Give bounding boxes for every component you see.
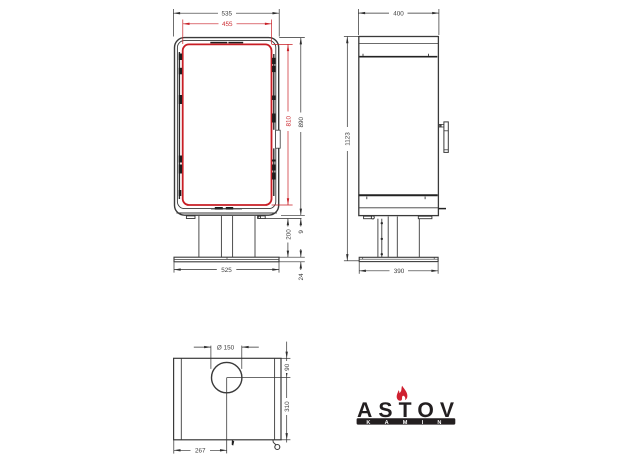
svg-text:310: 310 (284, 401, 291, 412)
svg-text:455: 455 (222, 21, 233, 28)
svg-text:390: 390 (394, 268, 405, 275)
svg-text:890: 890 (298, 116, 305, 127)
svg-text:525: 525 (221, 267, 232, 274)
svg-text:1123: 1123 (345, 132, 352, 146)
svg-text:Ø 150: Ø 150 (217, 344, 235, 351)
svg-text:535: 535 (221, 11, 232, 18)
svg-text:24: 24 (298, 273, 305, 281)
svg-text:90: 90 (284, 363, 291, 371)
svg-text:9: 9 (298, 230, 305, 234)
svg-text:200: 200 (285, 229, 292, 240)
svg-text:810: 810 (285, 115, 292, 126)
svg-text:267: 267 (195, 448, 206, 455)
svg-text:400: 400 (393, 11, 404, 18)
svg-text:KAMIN: KAMIN (366, 420, 455, 426)
